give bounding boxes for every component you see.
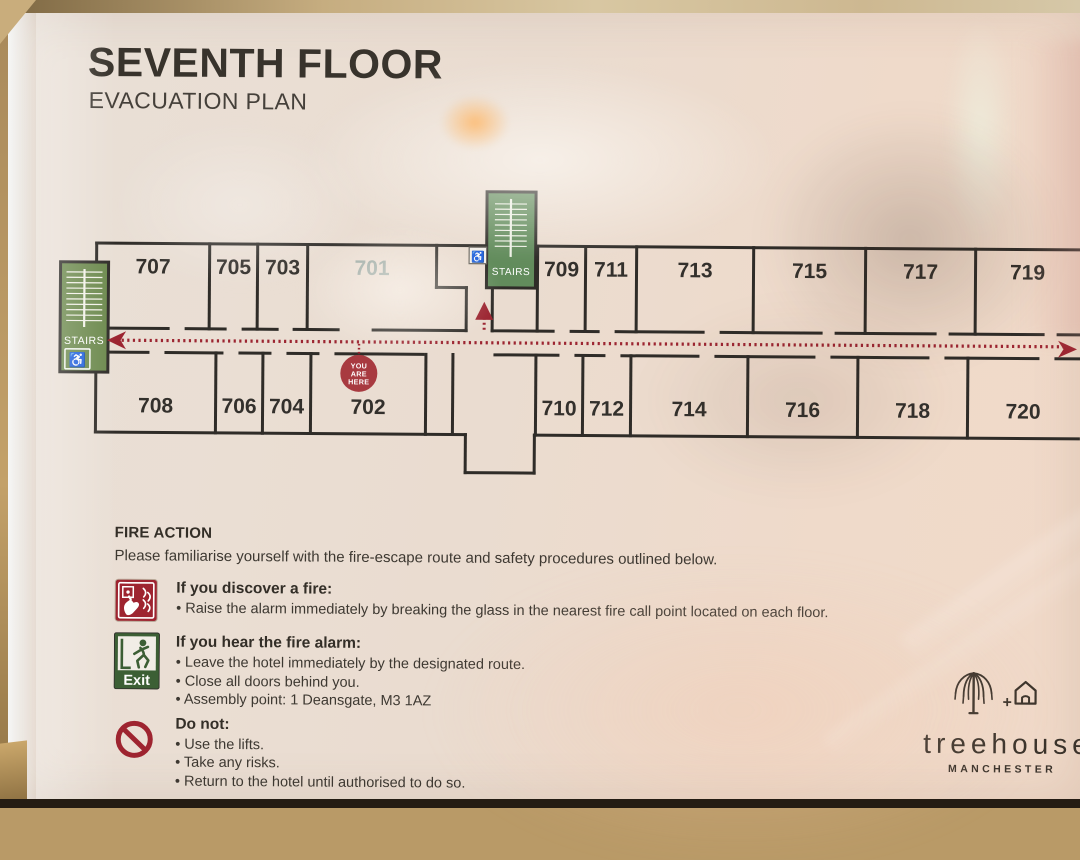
exit-running-man-icon: Exit <box>114 632 160 689</box>
svg-text:HERE: HERE <box>348 377 369 386</box>
frame-top-edge <box>0 0 1080 13</box>
route-arrow-up-to-stairs <box>475 302 493 320</box>
room-number-701: 701 <box>354 257 390 280</box>
room-number-718: 718 <box>895 400 931 423</box>
fire-action-intro: Please familiarise yourself with the fir… <box>114 547 914 570</box>
fire-action-bullet: Return to the hotel until authorised to … <box>175 772 466 793</box>
sign-content: SEVENTH FLOOR EVACUATION PLAN STAIRS♿STA… <box>0 0 1080 815</box>
room-number-702: 702 <box>350 396 385 419</box>
fire-action-bullet: Take any risks. <box>175 754 466 775</box>
brand-wordmark: treehouse <box>923 728 1080 761</box>
frame-left-edge <box>0 0 8 808</box>
room-number-710: 710 <box>541 397 576 420</box>
room-number-712: 712 <box>589 397 624 420</box>
fire-action-bullet: Leave the hotel immediately by the desig… <box>176 654 525 675</box>
frame-bottom-edge <box>0 799 1080 808</box>
floor-plan: STAIRS♿STAIRS♿YOUAREHERE7077057037017097… <box>0 0 1080 507</box>
fire-action-bullet: Close all doors behind you. <box>176 672 525 693</box>
route-arrow-right <box>1058 341 1077 358</box>
fire-action-section: FIRE ACTION Please familiarise yourself … <box>113 524 915 796</box>
room-number-704: 704 <box>269 395 305 418</box>
fire-action-item-title: Do not: <box>175 715 466 735</box>
room-number-707: 707 <box>135 255 170 278</box>
fire-action-item-title: If you hear the fire alarm: <box>176 634 525 654</box>
fire-action-bullet: Raise the alarm immediately by breaking … <box>176 600 828 623</box>
room-number-709: 709 <box>544 258 579 281</box>
room-number-713: 713 <box>677 259 712 282</box>
stairs-left: STAIRS♿ <box>60 262 109 372</box>
fire-action-item: ExitIf you hear the fire alarm:Leave the… <box>113 632 914 714</box>
fire-action-bullet: Assembly point: 1 Deansgate, M3 1AZ <box>175 691 524 712</box>
prohibition-icon <box>113 718 155 760</box>
stairs-label: STAIRS <box>64 335 104 347</box>
photo-of-evacuation-plan: { "sign": { "title": "SEVENTH FLOOR", "s… <box>0 0 1080 808</box>
stairs-label: STAIRS <box>492 267 530 278</box>
room-number-708: 708 <box>138 394 174 417</box>
room-number-719: 719 <box>1010 261 1045 284</box>
you-are-here-marker: YOUAREHERE <box>340 344 377 392</box>
room-number-703: 703 <box>265 256 300 279</box>
fire-action-item: If you discover a fire:Raise the alarm i… <box>114 578 914 628</box>
room-number-714: 714 <box>671 398 707 421</box>
room-number-716: 716 <box>785 399 820 422</box>
fire-action-heading: FIRE ACTION <box>115 524 915 547</box>
room-number-705: 705 <box>216 256 252 279</box>
room-number-711: 711 <box>594 259 628 282</box>
fire-call-point-icon <box>114 578 158 622</box>
tree-icon <box>955 673 992 713</box>
room-number-717: 717 <box>903 261 938 284</box>
room-number-706: 706 <box>221 395 256 418</box>
stairs-middle: STAIRS <box>486 192 536 288</box>
frame-corner <box>0 740 27 803</box>
brand-city: MANCHESTER <box>948 763 1056 776</box>
brand-logo: + <box>943 666 1043 732</box>
svg-text:Exit: Exit <box>123 673 150 689</box>
fire-action-bullet: Use the lifts. <box>175 735 466 756</box>
room-number-715: 715 <box>792 260 828 283</box>
room-number-720: 720 <box>1005 400 1040 423</box>
svg-text:♿: ♿ <box>69 352 87 369</box>
svg-text:♿: ♿ <box>471 251 485 264</box>
house-icon <box>1016 682 1036 704</box>
fire-action-item: Do not:Use the lifts.Take any risks.Retu… <box>113 714 914 796</box>
plus-sign: + <box>1002 694 1011 711</box>
wheelchair-icon: ♿ <box>469 247 487 264</box>
fire-action-item-title: If you discover a fire: <box>176 580 828 603</box>
